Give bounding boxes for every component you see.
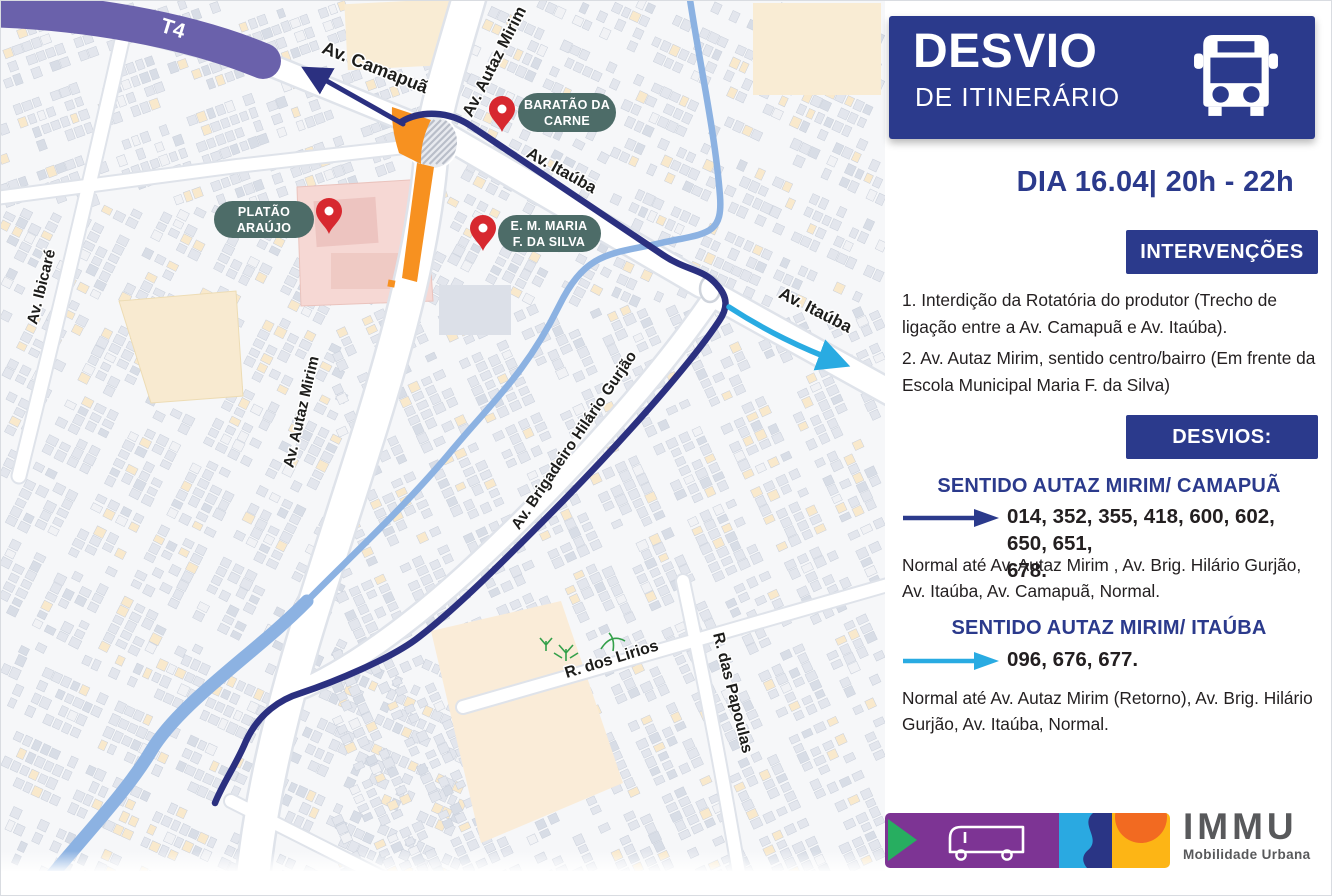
intervention-item-1: 1. Interdição da Rotatória do produtor (…: [902, 287, 1316, 341]
banner-wave-icon: [1059, 813, 1112, 868]
map-canvas: T4: [1, 1, 885, 896]
detour-heading-camapua: SENTIDO AUTAZ MIRIM/ CAMAPUÃ: [909, 475, 1309, 498]
detour-arrow-cyan-icon: [901, 649, 1003, 673]
map: T4: [1, 1, 885, 896]
detour-arrow-navy-icon: [901, 506, 1003, 530]
interventions-band: INTERVENÇÕES: [1126, 230, 1318, 274]
poi-badge-platao-line1: PLATÃO: [238, 204, 290, 219]
detour-description-itauba: Normal até Av. Autaz Mirim (Retorno), Av…: [902, 685, 1316, 737]
poster-title: DESVIO: [913, 24, 1097, 79]
intervention-item-2: 2. Av. Autaz Mirim, sentido centro/bairr…: [902, 345, 1316, 399]
date-time: DIA 16.04| 20h - 22h: [1017, 166, 1294, 199]
poi-badge-platao-line2: ARAÚJO: [237, 220, 292, 235]
immu-logo-subtitle: Mobilidade Urbana: [1183, 847, 1311, 862]
banner-blue-segment: [1059, 813, 1112, 868]
banner-green-arrow-icon: [888, 819, 917, 861]
footer-banner: [885, 813, 1170, 868]
poster-subtitle: DE ITINERÁRIO: [915, 82, 1120, 113]
detours-band: DESVIOS:: [1126, 415, 1318, 459]
detour-poster: T4: [0, 0, 1332, 896]
detour-routes-itauba: 096, 676, 677.: [1007, 646, 1317, 673]
poi-badge-baratao-line2: CARNE: [544, 114, 590, 128]
header-band: DESVIO DE ITINERÁRIO: [889, 16, 1315, 139]
bus-icon: [1193, 30, 1279, 122]
detour-routes-itauba-line1: 096, 676, 677.: [1007, 646, 1317, 673]
banner-yellow-segment: [1112, 813, 1170, 868]
detour-heading-itauba: SENTIDO AUTAZ MIRIM/ ITAÚBA: [909, 617, 1309, 640]
map-fade: [1, 851, 885, 873]
immu-logo: IMMU Mobilidade Urbana: [1183, 807, 1311, 862]
detour-description-camapua: Normal até Av. Autaz Mirim , Av. Brig. H…: [902, 552, 1316, 604]
poi-badge-em-maria-line1: E. M. MARIA: [511, 219, 588, 233]
map-fade-solid: [1, 871, 885, 896]
detour-routes-camapua-line1: 014, 352, 355, 418, 600, 602, 650, 651,: [1007, 503, 1317, 557]
poi-badge-em-maria-line2: F. DA SILVA: [513, 235, 586, 249]
poi-badge-baratao-line1: BARATÃO DA: [524, 97, 610, 112]
bus-outline-icon: [943, 822, 1031, 862]
immu-logo-title: IMMU: [1183, 807, 1311, 847]
banner-orange-circle-icon: [1115, 813, 1167, 843]
info-panel: DESVIO DE ITINERÁRIO DIA 16.04| 20h - 22…: [885, 1, 1332, 896]
